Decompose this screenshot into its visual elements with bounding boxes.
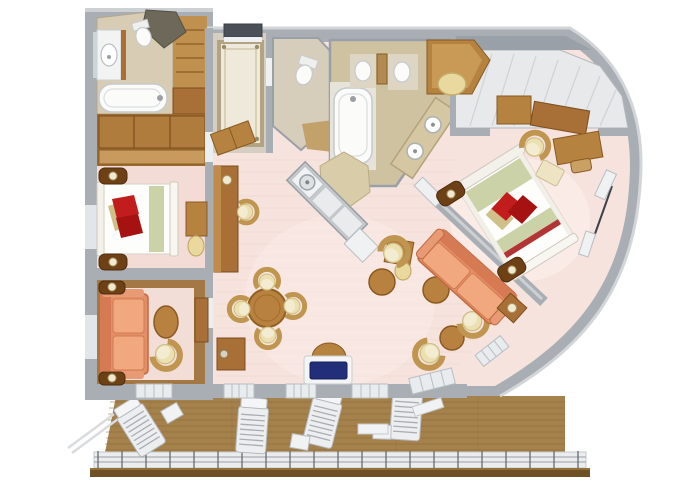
chair-cushion bbox=[285, 300, 295, 312]
gb-tub-faucet bbox=[157, 95, 163, 101]
chair-cushion bbox=[238, 206, 248, 217]
lounger-headrest bbox=[241, 397, 268, 409]
b2-dresser-stool bbox=[188, 236, 204, 256]
railing-base-strip bbox=[90, 469, 590, 477]
entry-door bbox=[224, 24, 262, 37]
foyer-wc-doorway bbox=[266, 58, 273, 86]
b2-bed-sage-band bbox=[149, 186, 166, 252]
gb-vanity-wood-face bbox=[121, 30, 126, 80]
b2-lamp-north bbox=[109, 172, 117, 180]
b2-closet-shelf bbox=[99, 150, 205, 164]
veranda-railing-band bbox=[94, 452, 586, 468]
foyer-corner-dot-2 bbox=[255, 45, 259, 49]
b2-footboard bbox=[170, 182, 178, 256]
sitting-lamp-south bbox=[108, 374, 116, 382]
master-bathtub-faucet bbox=[350, 96, 356, 102]
floor-plan-image bbox=[0, 0, 680, 486]
foyer-corner-dot-1 bbox=[222, 45, 226, 49]
deck-table-top bbox=[290, 434, 310, 451]
sideboard-top-highlight bbox=[214, 166, 221, 272]
sideboard-lamp bbox=[223, 176, 232, 185]
entry-threshold bbox=[224, 37, 262, 42]
sitting-sofa-cushion-1 bbox=[113, 299, 144, 333]
deck-step-1 bbox=[358, 424, 388, 434]
closet-bench-1 bbox=[497, 96, 531, 124]
closet-south-wall-1 bbox=[450, 128, 490, 136]
b2-dresser bbox=[186, 202, 207, 236]
sitting-console bbox=[195, 298, 208, 342]
foyer-east-wall bbox=[266, 33, 273, 153]
sitting-lamp-north bbox=[108, 283, 116, 291]
chair-cushion bbox=[239, 303, 249, 315]
closet-vanity-stool bbox=[438, 73, 466, 95]
left-wall-window-1 bbox=[85, 205, 97, 249]
chair-cushion bbox=[262, 328, 274, 338]
floor-plan-canvas bbox=[0, 0, 680, 486]
sitting-sofa-cushion-2 bbox=[113, 336, 144, 370]
window-bench-cushion bbox=[310, 362, 347, 379]
gb-bathtub bbox=[99, 84, 167, 112]
guest-closet-cabinet bbox=[173, 88, 207, 114]
b2-lamp-south bbox=[109, 258, 117, 266]
coffee-table-1 bbox=[369, 269, 395, 295]
chair-cushion bbox=[261, 279, 273, 289]
sitting-sofa-back bbox=[100, 294, 111, 374]
b2-closet-doors bbox=[99, 116, 205, 148]
master-bath-divider bbox=[377, 54, 387, 84]
master-toilet bbox=[355, 61, 371, 81]
railing-posts bbox=[98, 451, 578, 469]
deck-lounger-2 bbox=[236, 397, 270, 454]
closet-south-wall-2 bbox=[598, 128, 636, 136]
minibar-knob bbox=[220, 350, 228, 358]
left-wall-window-2 bbox=[85, 315, 97, 359]
gb-sink-drain bbox=[107, 55, 111, 59]
sitting-coffee-table bbox=[154, 306, 178, 338]
master-bidet bbox=[394, 62, 410, 82]
deck-side-table-2 bbox=[290, 434, 310, 451]
guest-wc-wood-floor bbox=[302, 120, 333, 152]
gb-mirror bbox=[93, 32, 97, 78]
